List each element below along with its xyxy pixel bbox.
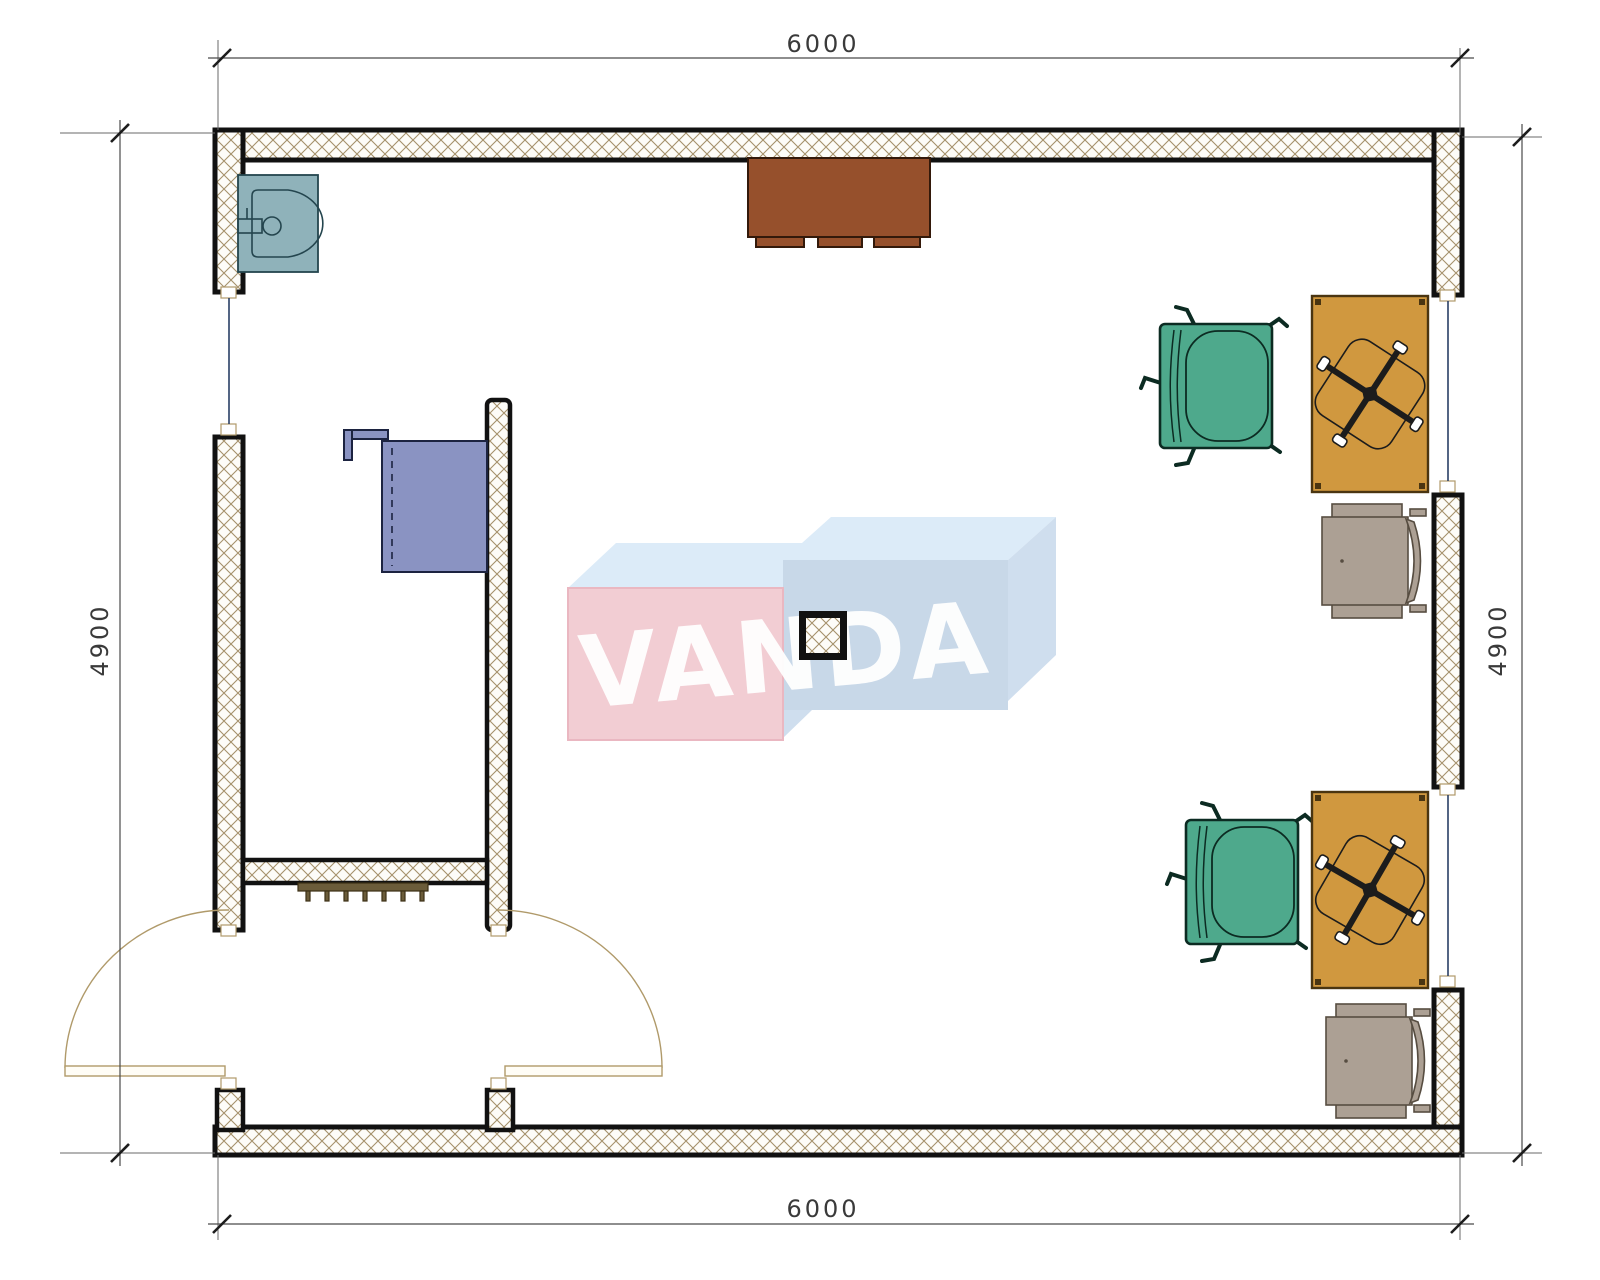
door-jamb-left: [217, 1090, 243, 1130]
sideboard-cabinet: [748, 158, 930, 247]
dim-label-top: 6000: [786, 30, 859, 58]
door-swing-left: [65, 910, 229, 1068]
door-swing-right: [497, 910, 662, 1068]
green-armchair: [1141, 307, 1287, 465]
floor-plan-canvas: VANDA: [0, 0, 1600, 1280]
wall-right-upper: [1434, 130, 1462, 295]
watermark-right-box-top: [783, 517, 1056, 560]
structural-column: [803, 615, 843, 656]
door-jamb-right: [487, 1090, 513, 1130]
entrance-doors: [65, 910, 662, 1076]
wall-cabinet: [344, 430, 487, 572]
dim-label-bottom: 6000: [786, 1195, 859, 1223]
floor-plan: VANDA: [0, 0, 1600, 1280]
green-armchair: [1167, 803, 1313, 961]
wall-interior-horizontal: [243, 860, 487, 883]
workstation-lower: [1167, 792, 1452, 1118]
wall-right-middle: [1434, 495, 1462, 787]
dim-label-right: 4900: [1484, 603, 1512, 676]
wall-bottom: [215, 1127, 1462, 1155]
gray-guest-chair: [1322, 504, 1426, 618]
gray-guest-chair: [1326, 1004, 1430, 1118]
radiator: [298, 883, 428, 901]
wall-left-lower: [215, 437, 243, 930]
wall-top: [215, 130, 1462, 160]
dim-label-left: 4900: [86, 603, 114, 676]
sink: [238, 175, 323, 272]
door-leaf-left: [65, 1066, 225, 1076]
wall-interior-vertical: [487, 400, 510, 930]
door-leaf-right: [505, 1066, 662, 1076]
workstation-upper: [1141, 296, 1453, 618]
